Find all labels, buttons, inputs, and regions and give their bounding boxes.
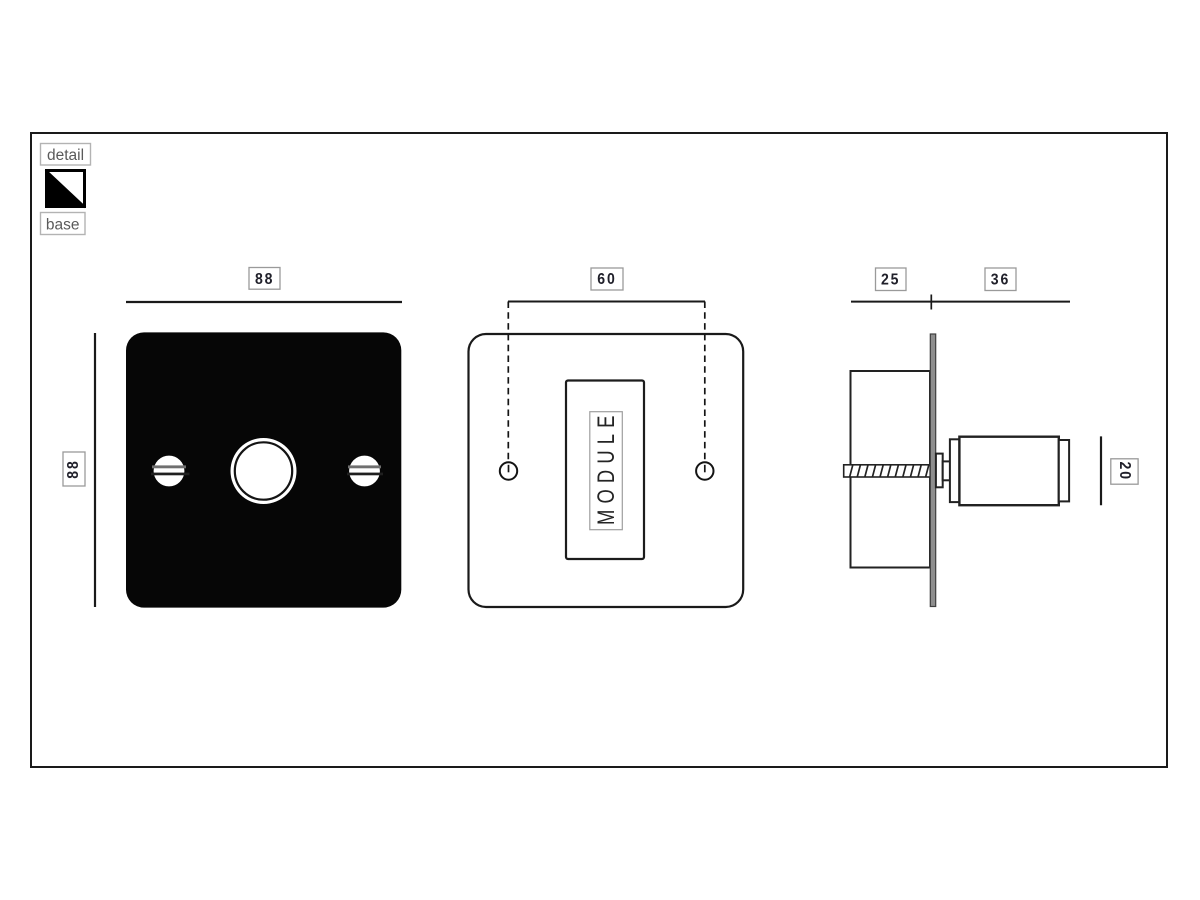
svg-text:88: 88: [255, 271, 275, 288]
svg-text:base: base: [46, 216, 80, 233]
svg-text:60: 60: [597, 271, 617, 288]
svg-text:36: 36: [991, 272, 1011, 289]
svg-text:25: 25: [881, 272, 901, 289]
svg-text:detail: detail: [47, 147, 84, 164]
svg-text:88: 88: [65, 459, 82, 479]
svg-text:20: 20: [1116, 462, 1133, 482]
